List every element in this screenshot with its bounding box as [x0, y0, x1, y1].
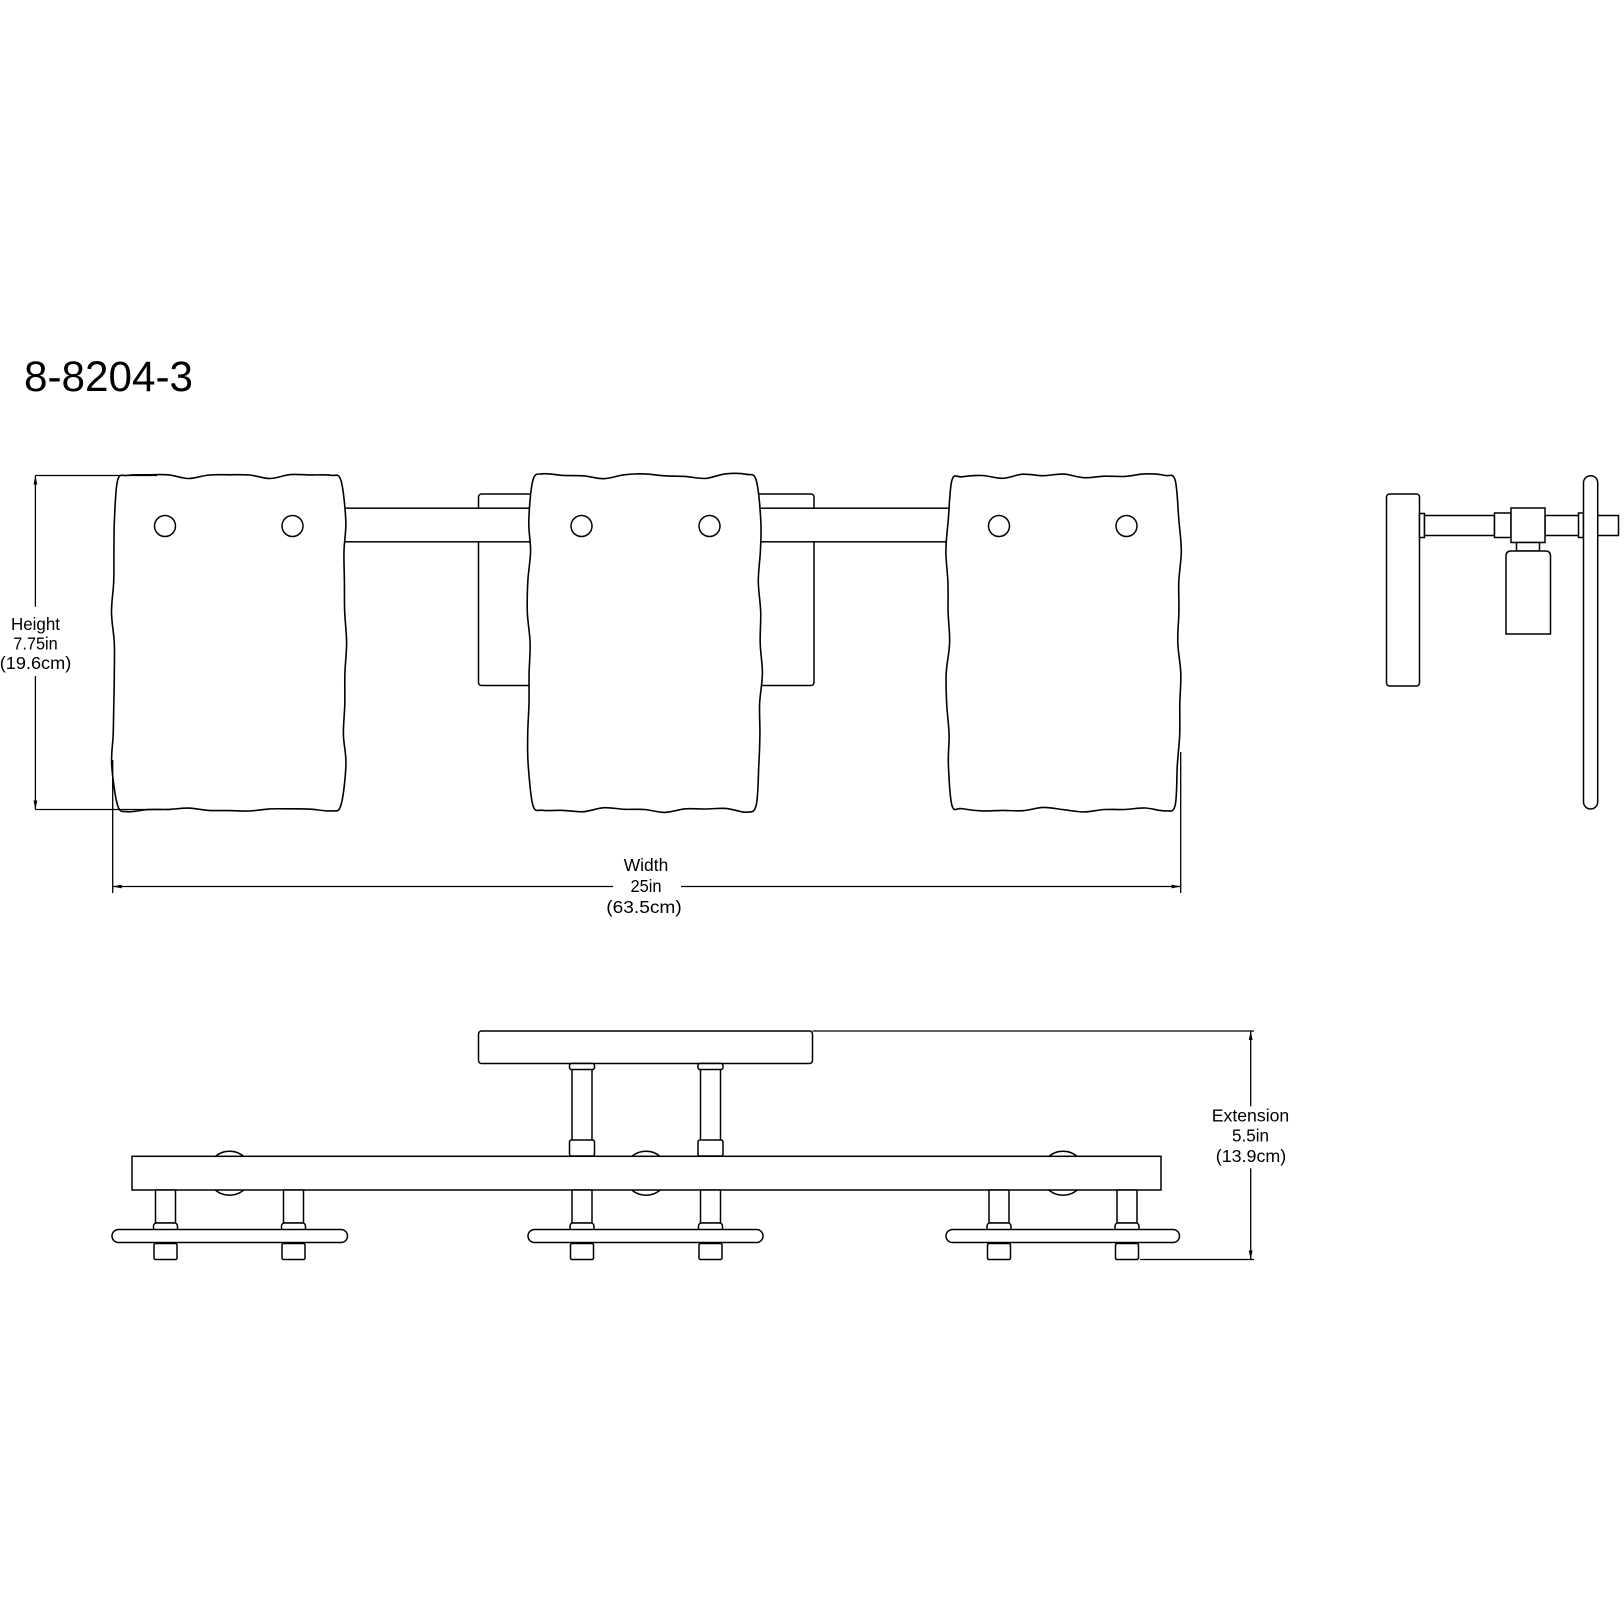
- svg-text:(13.9cm): (13.9cm): [1216, 1146, 1287, 1166]
- svg-text:5.5in: 5.5in: [1232, 1126, 1269, 1146]
- svg-text:Width: Width: [624, 855, 669, 875]
- svg-text:8-8204-3: 8-8204-3: [24, 353, 193, 401]
- svg-text:(19.6cm): (19.6cm): [0, 653, 71, 673]
- svg-text:25in: 25in: [631, 876, 662, 896]
- svg-text:(63.5cm): (63.5cm): [606, 897, 682, 917]
- svg-text:Height: Height: [11, 614, 60, 634]
- svg-text:7.75in: 7.75in: [13, 634, 58, 654]
- svg-text:Extension: Extension: [1212, 1106, 1290, 1126]
